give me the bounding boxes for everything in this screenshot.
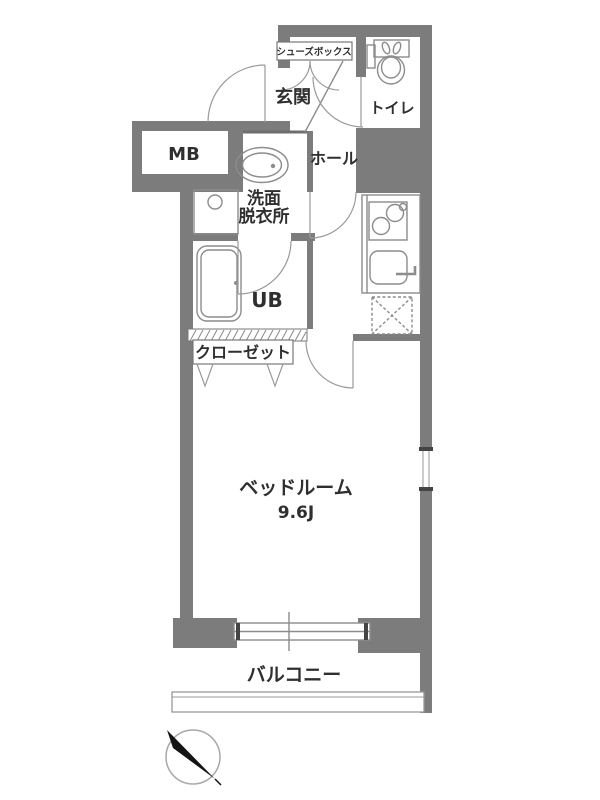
bathtub-icon (197, 246, 241, 321)
bedroom-label: ベッドルーム (239, 477, 352, 499)
closet: クローゼット (188, 329, 307, 386)
washroom-label-line2: 脱衣所 (239, 206, 290, 227)
closet-hanger-mark-right (267, 364, 283, 386)
floor-plan: シューズボックス 玄関 トイレ MB ホール (0, 0, 600, 800)
compass (166, 730, 221, 785)
kitchen-sink-icon (370, 251, 415, 284)
hall: ホール (310, 149, 358, 168)
wall (307, 241, 313, 329)
entrance: シューズボックス 玄関 (208, 42, 352, 132)
wall (278, 25, 432, 37)
wall (291, 233, 315, 241)
entrance-label: 玄関 (275, 86, 311, 108)
wall (132, 121, 290, 131)
bedroom: ベッドルーム 9.6J (234, 341, 433, 651)
walls (132, 25, 432, 713)
wall (228, 131, 243, 174)
unit-bath-label: UB (251, 288, 282, 312)
washroom-door-arc (310, 192, 356, 238)
hall-label: ホール (310, 149, 358, 168)
washroom-label-line1: 洗面 (247, 188, 281, 209)
wall (420, 489, 432, 713)
wall (353, 334, 420, 341)
closet-hanger-mark-left (197, 364, 213, 386)
floor-plan-canvas: シューズボックス 玄関 トイレ MB ホール (0, 0, 600, 800)
wall (173, 618, 237, 648)
balcony: バルコニー (172, 664, 424, 712)
refrigerator-space-icon (372, 297, 412, 334)
balcony-sliding-window (234, 612, 370, 651)
front-door-arc (208, 65, 265, 122)
bedroom-side-window (419, 449, 433, 489)
meter-box: MB (168, 144, 200, 165)
balcony-label: バルコニー (247, 664, 342, 686)
closet-label: クローゼット (195, 343, 291, 362)
toilet-label: トイレ (369, 99, 414, 117)
bedroom-size-label: 9.6J (278, 503, 314, 523)
wall (180, 192, 193, 620)
shoe-box-label: シューズボックス (276, 46, 351, 58)
north-arrow-tail (215, 779, 221, 785)
bedroom-door-arc (306, 341, 353, 388)
wall (420, 25, 432, 449)
toilet-icon (367, 40, 409, 84)
meter-box-label: MB (168, 144, 200, 165)
washbasin-icon (236, 148, 288, 183)
kitchen (362, 195, 420, 334)
washing-machine-icon (194, 190, 238, 234)
unit-bath: UB (197, 241, 291, 321)
unit-bath-door-arc (238, 241, 291, 294)
balcony-railing (172, 692, 424, 712)
wall (356, 37, 366, 77)
wall (356, 128, 432, 193)
stove-icon (369, 202, 407, 240)
